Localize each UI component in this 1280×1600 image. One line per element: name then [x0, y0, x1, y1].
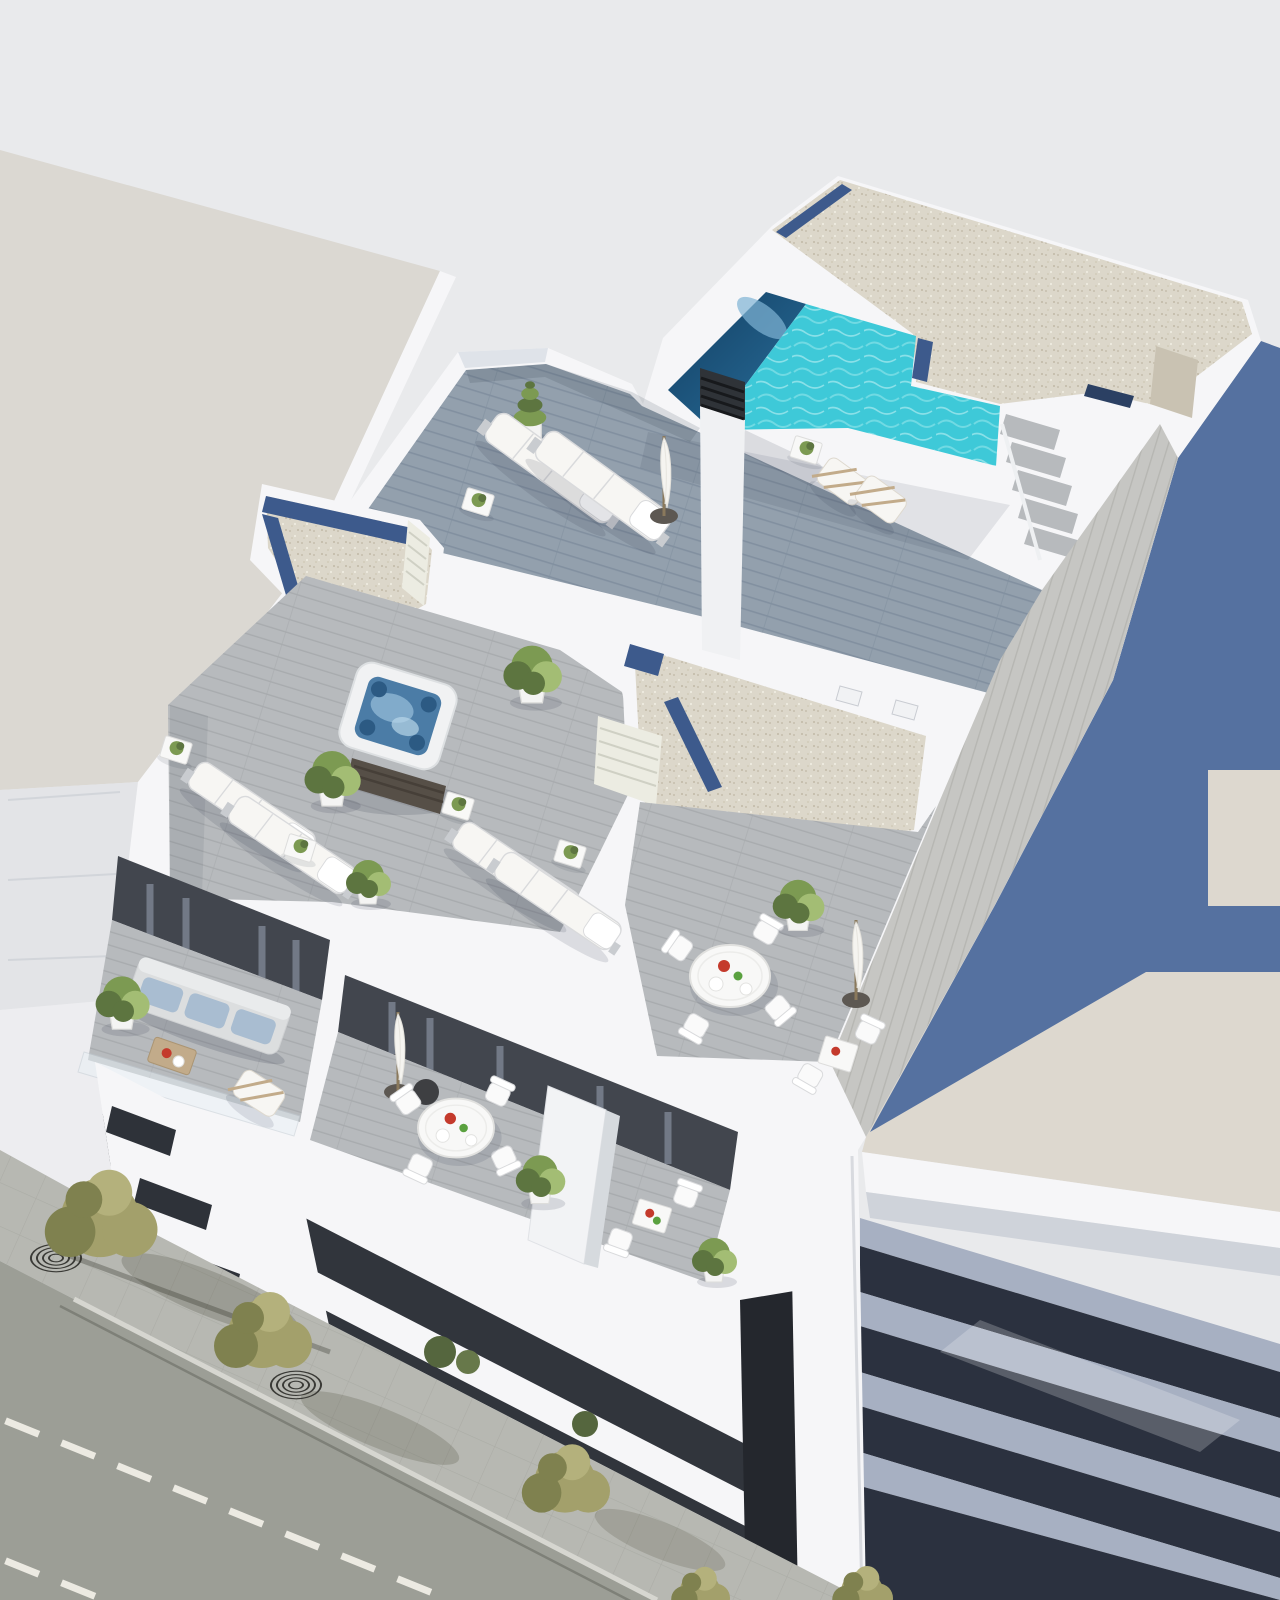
closed-parasol — [650, 436, 678, 524]
terrace-parapet-shadow — [170, 705, 208, 896]
facade-recess-band-3 — [95, 1274, 860, 1600]
potted-plant — [96, 976, 150, 1036]
street-facade — [95, 1110, 860, 1600]
divider-wall-side — [584, 1110, 620, 1268]
louver-door-slats — [406, 532, 427, 585]
rooftop-pool — [668, 289, 1000, 466]
tree-grate — [264, 1368, 327, 1403]
sun-lounger — [476, 845, 631, 971]
lamp-post-shadow — [70, 1256, 330, 1352]
left-stair-bulkhead — [250, 484, 444, 652]
wooden-deck-chair — [804, 451, 878, 522]
penthouse-gravel-roof — [772, 180, 1252, 406]
chair — [488, 1143, 522, 1177]
pool-reflection — [730, 289, 793, 346]
chimney — [700, 368, 830, 660]
louvered-door-mid-south — [796, 840, 902, 906]
chair — [762, 992, 798, 1028]
chair — [389, 1082, 425, 1117]
louvered-door-left — [402, 520, 430, 606]
glass-balustrade — [78, 1052, 300, 1136]
bush-shadow — [588, 1497, 731, 1583]
balcony-greenery — [424, 1336, 456, 1368]
side-walkway-deck — [830, 424, 1178, 1137]
potted-plant — [305, 751, 361, 814]
tree-shadow — [294, 1378, 467, 1479]
balcony-back-wall — [112, 856, 330, 1000]
round-dining-table — [690, 945, 778, 1016]
chimney-shaft — [700, 406, 745, 660]
building-cast-shadow — [870, 341, 1280, 1132]
roof-vent-2 — [892, 700, 918, 720]
upper-deck-furniture — [458, 381, 916, 563]
mid-roof-volume — [594, 630, 940, 920]
outdoor-sofa — [120, 955, 302, 1073]
garage-recess — [740, 1290, 806, 1600]
dining-terrace-furniture — [660, 880, 886, 1096]
skylight-strip-door — [1084, 384, 1134, 408]
lane-markings — [4, 1418, 432, 1600]
closed-parasol — [384, 1012, 412, 1100]
street-greenery — [24, 1170, 893, 1600]
sidewalk — [0, 1150, 864, 1600]
pillar-edge — [852, 1156, 862, 1600]
chair — [402, 1151, 436, 1185]
render-canvas — [0, 0, 1280, 1600]
round-dining-table — [418, 1099, 502, 1166]
aerial-building-render — [0, 0, 1280, 1600]
side-table — [786, 435, 829, 472]
potted-plant — [503, 646, 562, 711]
potted-plant — [692, 1238, 737, 1288]
skylight-strip-mid-2 — [664, 697, 722, 792]
facade-recess-band-2 — [95, 1192, 860, 1600]
roof-access-door — [1150, 346, 1198, 418]
potted-tree — [773, 880, 825, 938]
window-void — [159, 1246, 240, 1296]
chimney-shadow — [740, 430, 830, 486]
hot-tub-panel — [346, 758, 446, 814]
window-void — [134, 1178, 212, 1230]
sky-background — [0, 0, 1280, 1600]
side-table — [550, 839, 593, 876]
small-table — [818, 1036, 859, 1073]
street-asphalt — [0, 1261, 657, 1600]
louver-building-bands — [860, 1218, 1280, 1600]
parapet-edge-highlight — [306, 271, 456, 570]
dark-planter — [413, 1079, 439, 1105]
louver-building-fascia — [866, 1192, 1280, 1276]
tree-grate — [24, 1241, 87, 1276]
adjacent-building-left-lower — [0, 1000, 118, 1215]
sofa-balcony — [78, 856, 330, 1136]
curtains-2 — [392, 1002, 668, 1164]
pool-deep-end — [668, 292, 806, 430]
side-table — [156, 735, 199, 772]
skylight-strip-poolside — [912, 338, 933, 382]
closed-parasol — [842, 920, 870, 1008]
sidewalk-bush — [671, 1567, 730, 1600]
skylight-strip-mid-1 — [624, 644, 664, 676]
pool-ripples — [712, 304, 1000, 466]
street-tree — [45, 1170, 158, 1257]
sun-lounger — [514, 423, 680, 564]
wooden-deck-chair — [220, 1063, 294, 1133]
potted-plant — [346, 860, 391, 910]
skylight-strip-left-2 — [262, 514, 304, 606]
sidewalk-bush — [522, 1444, 610, 1512]
chair — [482, 1075, 516, 1109]
upper-roof-deck — [342, 364, 1042, 694]
pool-wall-shadow-on-deck — [640, 432, 1010, 560]
sidewalk-bush — [832, 1566, 893, 1600]
glass-balustrade-lines — [8, 792, 120, 960]
jacuzzi-terrace-furniture — [156, 646, 631, 971]
chair — [660, 929, 695, 965]
neighbor-wall-right — [862, 341, 1280, 1212]
balcony-greenery — [572, 1411, 598, 1437]
sun-lounger — [170, 755, 325, 881]
facade-recess-band-1 — [95, 1110, 860, 1551]
corner-wall-windows — [106, 1106, 240, 1296]
gutter-line — [60, 1306, 640, 1600]
small-table — [632, 1199, 672, 1234]
side-table — [280, 833, 323, 870]
sun-lounger — [434, 815, 589, 941]
side-table — [438, 791, 481, 828]
balcony-back-wall-2 — [338, 975, 738, 1190]
sun-lounger — [210, 789, 365, 915]
coffee-table — [147, 1037, 197, 1076]
pool-stairs — [1000, 414, 1084, 560]
parapet-inner-face-top — [458, 348, 548, 368]
window-void — [106, 1106, 176, 1156]
skylight-strip-left-1 — [262, 496, 412, 544]
chair — [670, 1177, 703, 1209]
wooden-deck-chair — [842, 469, 916, 540]
round-table-balcony-floor — [310, 1032, 730, 1282]
pool-shallow-water — [712, 304, 1000, 466]
chair — [603, 1226, 636, 1258]
potted-plant — [516, 1155, 566, 1210]
chair — [791, 1061, 826, 1096]
round-table-balcony — [310, 975, 738, 1288]
jacuzzi-terrace-deck — [168, 576, 640, 932]
skylight-strip-top — [776, 184, 852, 238]
side-table — [458, 487, 501, 524]
chimney-louver-top — [700, 368, 745, 420]
sofa-balcony-floor — [88, 920, 322, 1122]
chair — [677, 1011, 712, 1046]
facade-corner-wall — [95, 1062, 330, 1330]
hot-tub — [335, 659, 464, 815]
roof-vent-1 — [836, 686, 862, 706]
balcony-greenery — [456, 1350, 480, 1374]
parapet-shadow-on-deck — [466, 364, 700, 442]
curb-line — [74, 1299, 657, 1600]
chair — [750, 913, 785, 948]
corner-pillar — [790, 1153, 866, 1600]
dining-terrace-deck — [625, 802, 936, 1062]
louvered-door-mid-left — [594, 716, 662, 806]
street-tree — [214, 1292, 312, 1368]
main-building-mass — [95, 176, 1261, 1600]
cone-plant — [514, 381, 554, 446]
balcony-divider-wall — [528, 1086, 606, 1264]
adjacent-building-left-upper — [0, 782, 138, 1010]
sun-lounger — [464, 405, 630, 546]
louver-building-roof — [862, 1152, 1280, 1248]
chimney-slats — [701, 378, 744, 419]
chair — [852, 1013, 886, 1047]
curtains — [150, 884, 296, 992]
tree-shadow — [114, 1238, 307, 1350]
adjacent-roof-top-left — [0, 150, 440, 790]
